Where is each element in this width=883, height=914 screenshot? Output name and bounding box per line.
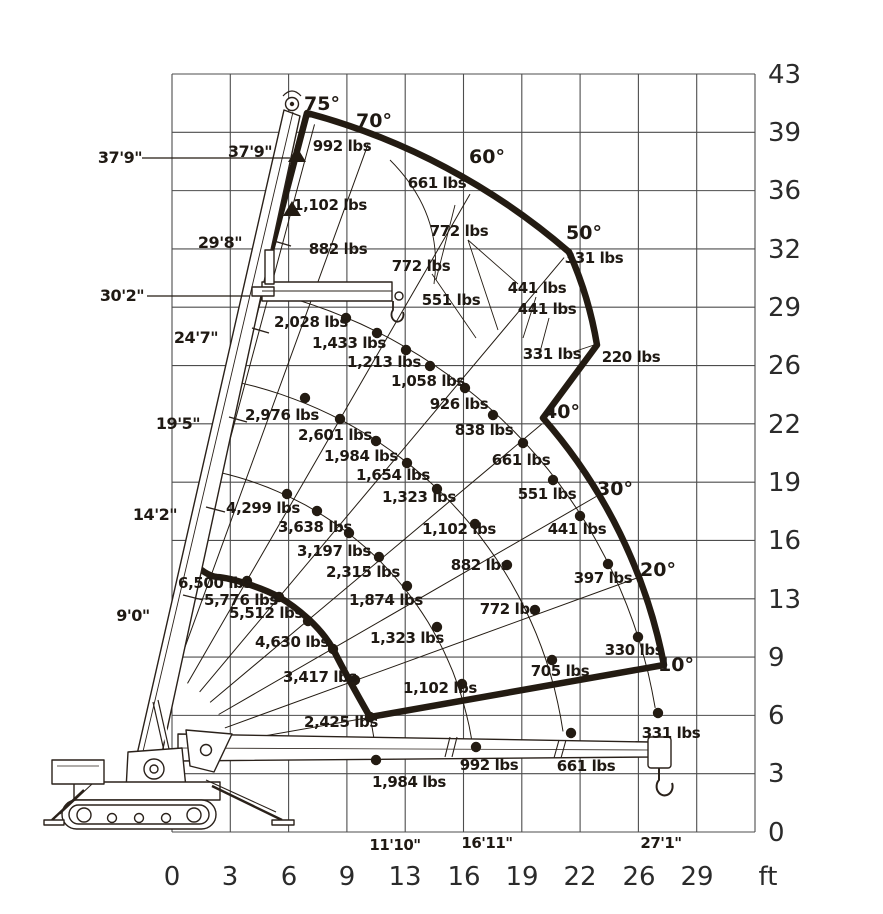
capacity-label: 882 lbs (309, 240, 368, 258)
capacity-label: 838 lbs (455, 421, 514, 439)
height-marker: 29'8" (198, 233, 242, 252)
height-marker: 37'9" (228, 142, 272, 161)
y-axis-tick-label: 36 (768, 176, 801, 206)
capacity-point (548, 475, 558, 485)
capacity-label: 220 lbs (602, 348, 661, 366)
y-axis-tick-label: 39 (768, 118, 801, 148)
capacity-label: 3,417 lbs (283, 668, 357, 686)
capacity-label: 1,984 lbs (372, 773, 446, 791)
x-axis-tick-label: 3 (222, 862, 239, 892)
x-axis-tick-label: 22 (563, 862, 596, 892)
x-axis-tick-label: 26 (622, 862, 655, 892)
capacity-label: 772 lbs (430, 222, 489, 240)
boom-angle-label: 60° (469, 146, 505, 168)
capacity-label: 1,874 lbs (349, 591, 423, 609)
crane-hook (657, 768, 673, 795)
capacity-label: 1,323 lbs (382, 488, 456, 506)
capacity-label: 2,425 lbs (304, 713, 378, 731)
y-axis-tick-label: 16 (768, 526, 801, 556)
capacity-label: 1,102 lbs (403, 679, 477, 697)
capacity-label: 661 lbs (492, 451, 551, 469)
capacity-label: 331 lbs (523, 345, 582, 363)
height-marker: 37'9" (98, 148, 142, 167)
capacity-point (374, 552, 384, 562)
radius-marker: 27'1" (640, 834, 681, 852)
capacity-label: 1,323 lbs (370, 629, 444, 647)
capacity-label: 397 lbs (574, 569, 633, 587)
boom-angle-label: 40° (544, 401, 580, 423)
capacity-point (471, 742, 481, 752)
crane-main-boom (133, 91, 301, 776)
crane-tracks (62, 800, 216, 829)
capacity-label: 551 lbs (518, 485, 577, 503)
capacity-label: 441 lbs (518, 300, 577, 318)
capacity-point (371, 755, 381, 765)
x-axis-tick-label: 19 (505, 862, 538, 892)
y-axis-tick-label: 26 (768, 351, 801, 381)
capacity-point (328, 644, 338, 654)
x-axis-tick-label: 13 (388, 862, 421, 892)
capacity-label: 882 lbs (451, 556, 510, 574)
capacity-point (303, 616, 313, 626)
capacity-point (312, 506, 322, 516)
capacity-label: 2,601 lbs (298, 426, 372, 444)
capacity-label: 992 lbs (313, 137, 372, 155)
x-axis-tick-label: 9 (339, 862, 356, 892)
capacity-label: 330 lbs (605, 641, 664, 659)
y-axis-tick-label: 3 (768, 759, 785, 789)
capacity-point (566, 728, 576, 738)
capacity-label: 926 lbs (430, 395, 489, 413)
y-axis-tick-label: 0 (768, 818, 785, 848)
y-axis-tick-label: 32 (768, 235, 801, 265)
capacity-label: 331 lbs (565, 249, 624, 267)
crane-jib (252, 250, 403, 322)
capacity-label: 1,433 lbs (312, 334, 386, 352)
y-axis-tick-label: 6 (768, 701, 785, 731)
capacity-label: 772 lbs (392, 257, 451, 275)
boom-angle-label: 50° (566, 222, 602, 244)
capacity-label: 661 lbs (557, 757, 616, 775)
capacity-point (603, 559, 613, 569)
capacity-label: 4,299 lbs (226, 499, 300, 517)
capacity-point (371, 436, 381, 446)
capacity-label: 2,028 lbs (274, 313, 348, 331)
y-axis-tick-label: 29 (768, 293, 801, 323)
capacity-point (653, 708, 663, 718)
capacity-label: 4,630 lbs (255, 633, 329, 651)
capacity-label: 772 lbs (480, 600, 539, 618)
x-axis-tick-label: 29 (680, 862, 713, 892)
x-axis-unit-label: ft (759, 862, 778, 892)
capacity-label: 3,197 lbs (297, 542, 371, 560)
capacity-point (402, 581, 412, 591)
capacity-label: 1,102 lbs (422, 520, 496, 538)
boom-angle-label: 30° (597, 478, 633, 500)
y-axis-tick-label: 13 (768, 585, 801, 615)
radius-marker: 16'11" (461, 834, 512, 852)
capacity-label: 1,058 lbs (391, 372, 465, 390)
capacity-label: 551 lbs (422, 291, 481, 309)
capacity-point (425, 361, 435, 371)
capacity-label: 661 lbs (408, 174, 467, 192)
capacity-label: 992 lbs (460, 756, 519, 774)
capacity-label: 3,638 lbs (278, 518, 352, 536)
height-marker: 19'5" (156, 414, 200, 433)
capacity-label: 1,654 lbs (356, 466, 430, 484)
height-marker: 9'0" (116, 606, 150, 625)
boom-angle-label: 10° (658, 654, 694, 676)
height-marker: 24'7" (174, 328, 218, 347)
x-axis-tick-label: 6 (281, 862, 298, 892)
capacity-label: 6,500 lbs (178, 574, 252, 592)
capacity-point (300, 393, 310, 403)
x-axis-tick-label: 16 (447, 862, 480, 892)
capacity-point (488, 410, 498, 420)
crane-load-chart: 992 lbs661 lbs331 lbs220 lbs1,102 lbs882… (0, 0, 883, 914)
capacity-label: 331 lbs (642, 724, 701, 742)
height-marker: 14'2" (133, 505, 177, 524)
capacity-label: 1,102 lbs (293, 196, 367, 214)
capacity-label: 441 lbs (508, 279, 567, 297)
boom-angle-label: 70° (356, 110, 392, 132)
height-marker: 30'2" (100, 286, 144, 305)
capacity-label: 705 lbs (531, 662, 590, 680)
boom-angle-label: 75° (304, 93, 340, 115)
x-axis-tick-label: 0 (164, 862, 181, 892)
capacity-label: 2,315 lbs (326, 563, 400, 581)
capacity-label: 1,984 lbs (324, 447, 398, 465)
y-axis-tick-label: 19 (768, 468, 801, 498)
capacity-point (335, 414, 345, 424)
capacity-point (518, 438, 528, 448)
load-chart-page: 992 lbs661 lbs331 lbs220 lbs1,102 lbs882… (0, 0, 883, 914)
capacity-label: 5,512 lbs (229, 604, 303, 622)
capacity-label: 1,213 lbs (347, 353, 421, 371)
capacity-label: 441 lbs (548, 520, 607, 538)
radius-marker: 11'10" (369, 836, 420, 854)
y-axis-tick-label: 43 (768, 60, 801, 90)
y-axis-tick-label: 22 (768, 410, 801, 440)
capacity-point (282, 489, 292, 499)
y-axis-tick-label: 9 (768, 643, 785, 673)
boom-angle-label: 20° (640, 559, 676, 581)
capacity-label: 2,976 lbs (245, 406, 319, 424)
